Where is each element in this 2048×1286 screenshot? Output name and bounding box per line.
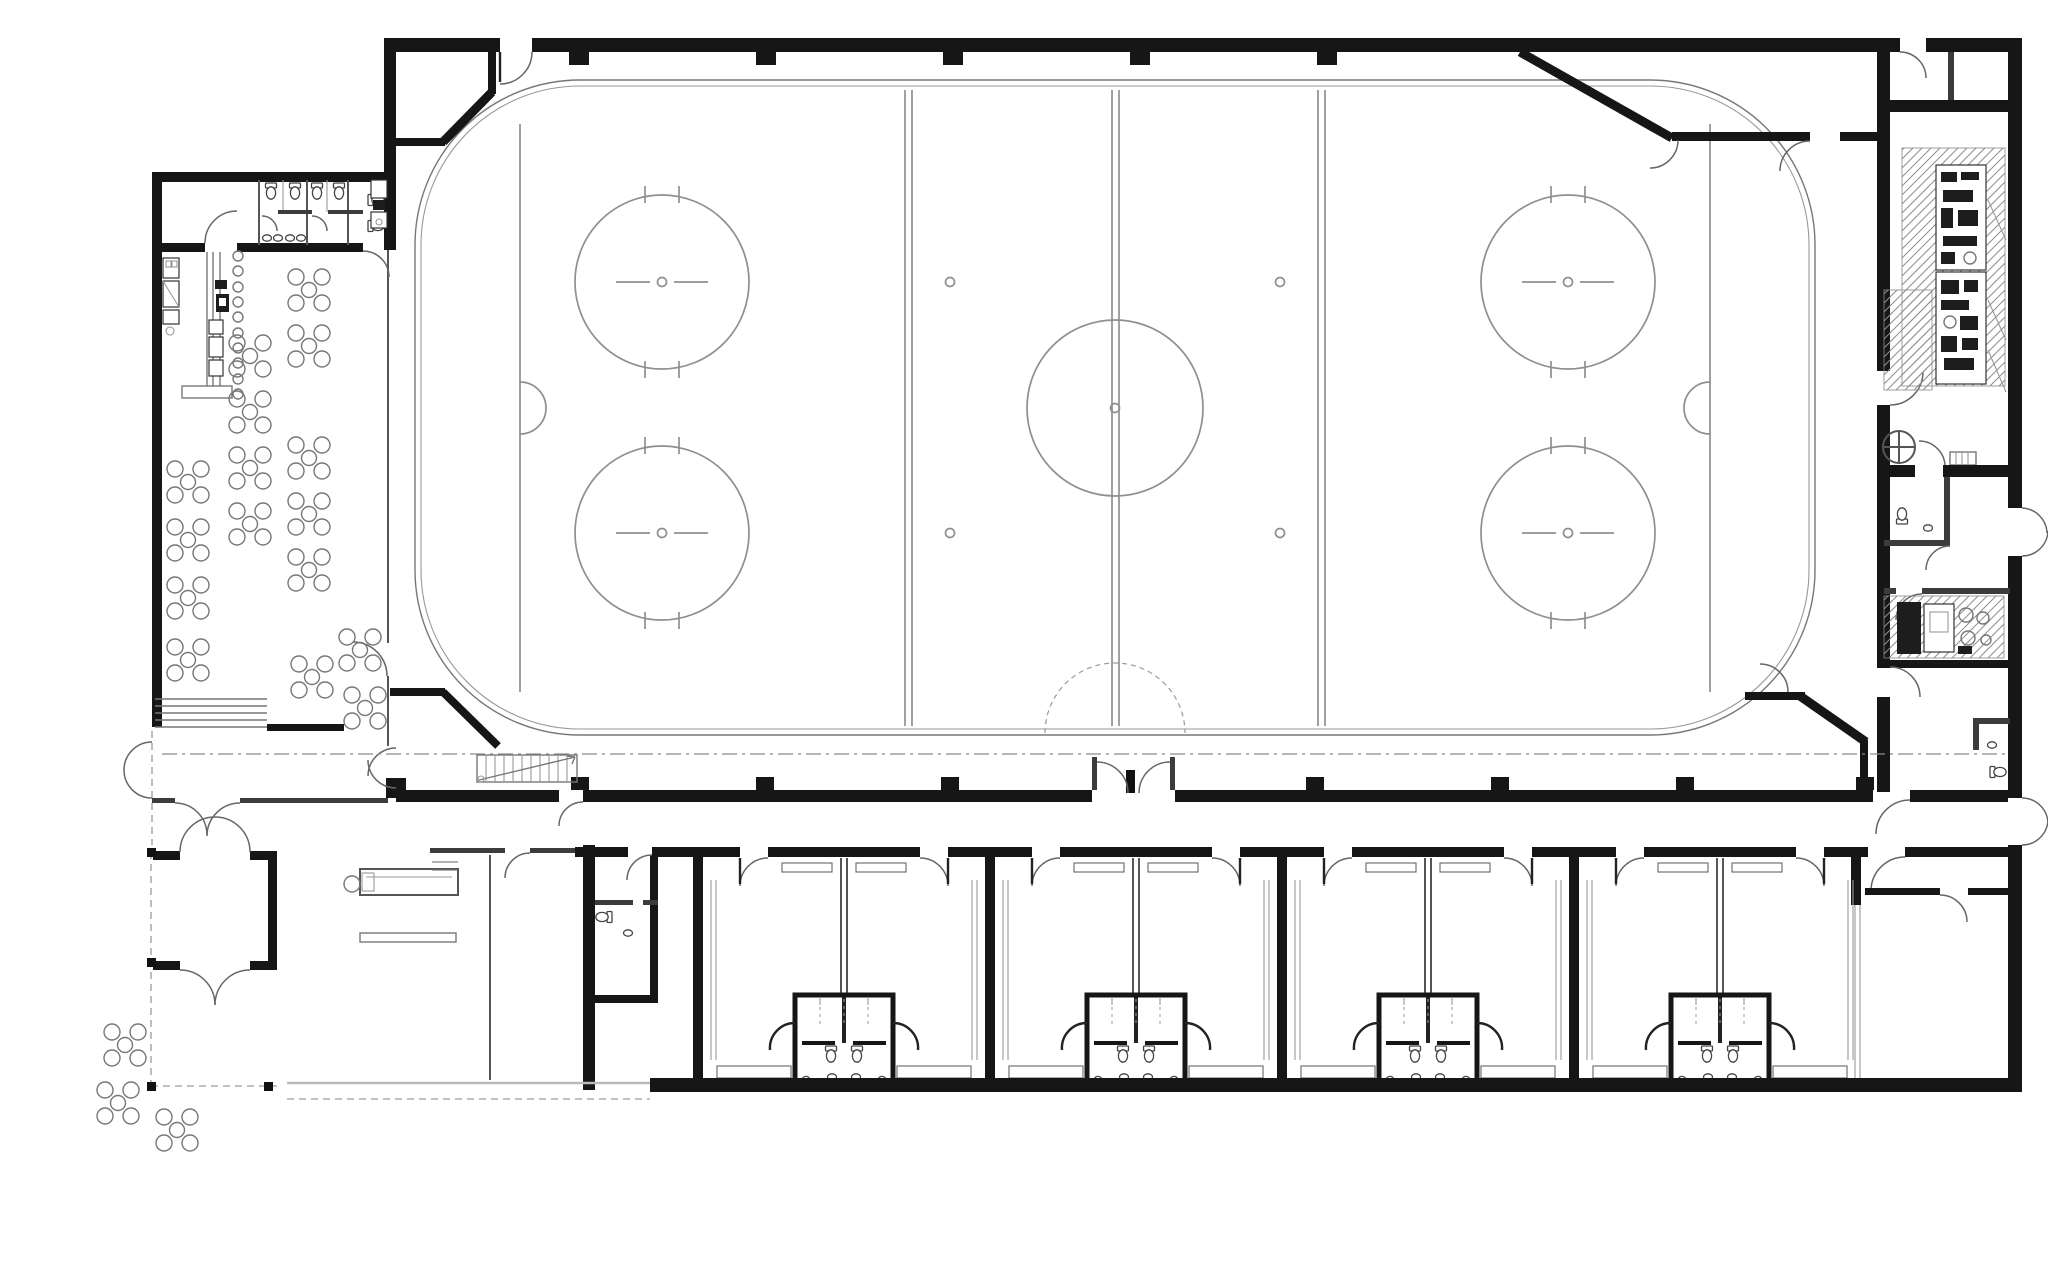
canopy-column: [147, 958, 156, 967]
wc-block-top-wall: [152, 172, 390, 182]
canopy-column: [147, 1082, 156, 1091]
restaurant-south-wall: [267, 724, 344, 731]
floor-plan-drawing: [0, 0, 2048, 1286]
floor-plan-page: Ice rink facility — ground floor plan: [0, 0, 2048, 1286]
canopy-column: [264, 1082, 273, 1091]
lobby-east-wall: [583, 845, 595, 1090]
canopy-column: [147, 848, 156, 857]
west-wall: [152, 172, 162, 727]
machine-room-2: [1877, 588, 2022, 668]
